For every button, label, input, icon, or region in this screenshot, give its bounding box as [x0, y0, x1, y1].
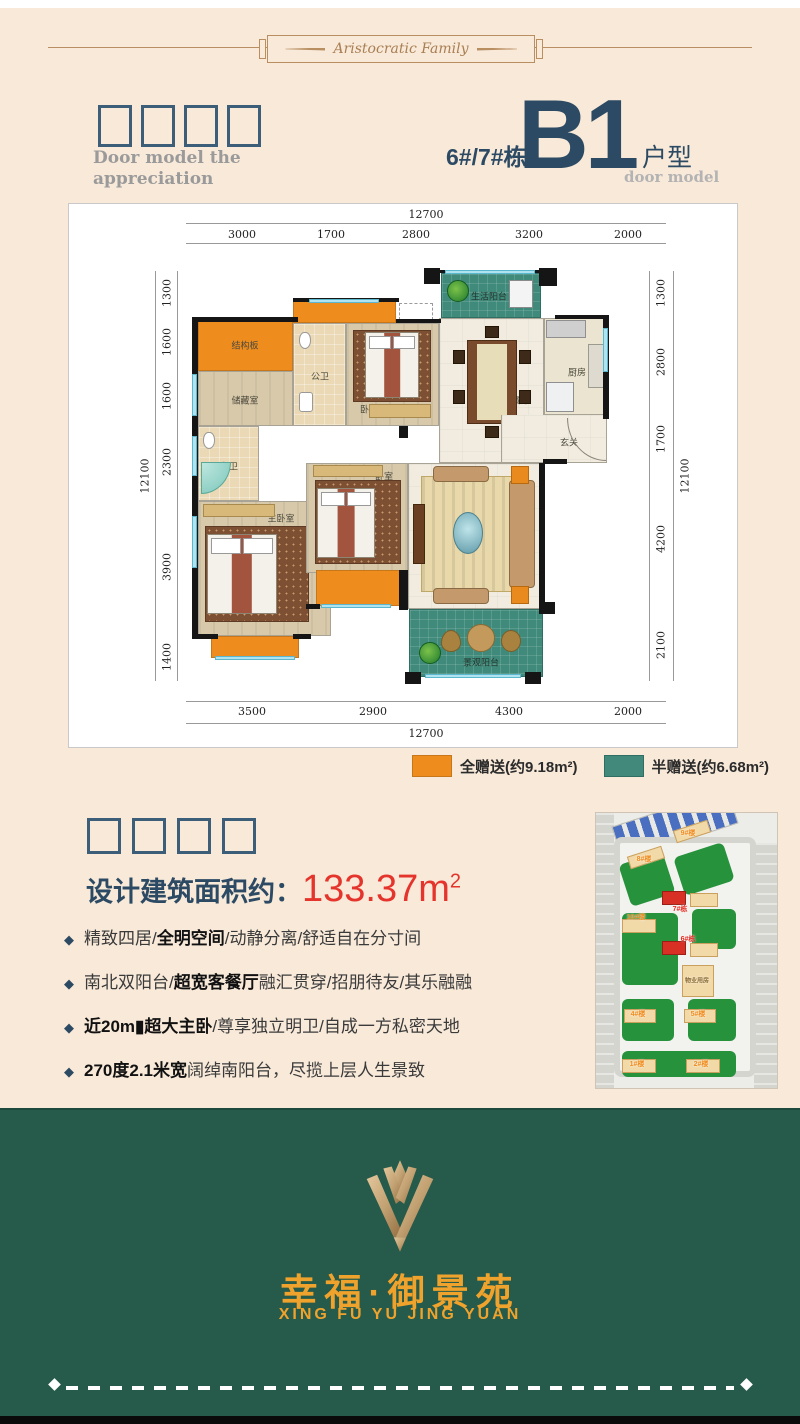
- diamond-bullet-icon: ◆: [64, 1020, 74, 1036]
- dim-left-total: 12100: [139, 459, 152, 494]
- poster: Aristocratic Family Door model the appre…: [0, 0, 800, 1424]
- room-label-life-balcony: 生活阳台: [471, 290, 507, 303]
- brand-logo: [0, 1158, 800, 1254]
- feature-post: /动静分离/舒适自在分寸间: [225, 929, 421, 948]
- dim-bottom-2: 4300: [495, 705, 523, 718]
- dim-left-0: 1300: [161, 279, 174, 307]
- washer: [509, 280, 533, 308]
- window: [445, 270, 535, 274]
- sitemap-building: [690, 943, 718, 957]
- pillow: [243, 538, 272, 554]
- dim-line: [186, 723, 666, 724]
- wall-pillar: [424, 268, 440, 284]
- plant: [419, 642, 441, 664]
- chair: [453, 390, 465, 404]
- sitemap-road: [596, 813, 614, 1088]
- subtitle-en: Door model the appreciation: [93, 148, 241, 190]
- placeholder-square: [132, 818, 166, 854]
- dim-top-2: 2800: [402, 228, 430, 241]
- placeholder-square: [141, 105, 175, 147]
- footer: 幸福·御景苑 XING FU YU JING YUAN: [0, 1108, 800, 1418]
- wall: [192, 317, 298, 322]
- ornament-cap-left: [259, 39, 266, 59]
- balcony-chair: [501, 630, 521, 652]
- chair: [485, 326, 499, 338]
- sitemap-building: [690, 893, 718, 907]
- wall: [543, 459, 567, 464]
- feature-post: 融汇贯穿/招朋待友/其乐融融: [259, 973, 472, 992]
- window: [192, 436, 197, 476]
- legend-full-label: 全赠送(约9.18m²): [460, 756, 578, 777]
- sitemap-label-1: 1#楼: [630, 1059, 645, 1069]
- wall: [539, 463, 545, 609]
- wall: [399, 426, 408, 438]
- dim-line: [186, 243, 666, 244]
- dim-left-5: 1400: [161, 643, 174, 671]
- wall: [399, 570, 408, 610]
- dim-top-total: 12700: [409, 208, 444, 221]
- dim-line: [186, 223, 666, 224]
- dim-left-1: 1600: [161, 328, 174, 356]
- tv-cabinet: [413, 504, 425, 564]
- area-line: 设计建筑面积约：133.37m2: [86, 868, 461, 911]
- sitemap-label-5: 5#楼: [691, 1009, 706, 1019]
- placeholder-square: [87, 818, 121, 854]
- sitemap: 9#楼 8#楼 7#栋 10#楼 6#栋 物业用房 4#楼 5#楼 1#楼 2#…: [595, 812, 778, 1089]
- dim-right-2: 1700: [655, 425, 668, 453]
- feature-list: ◆ 精致四居/全明空间/动静分离/舒适自在分寸间 ◆ 南北双阳台/超宽客餐厅融汇…: [64, 924, 472, 1081]
- fridge: [546, 382, 574, 412]
- gift-area-bottom-mid: [316, 570, 406, 606]
- diamond-bullet-icon: ◆: [64, 1064, 74, 1080]
- feature-bold: 全明空间: [157, 929, 225, 948]
- wall: [196, 634, 218, 639]
- coffee-table: [453, 512, 483, 554]
- wall: [396, 319, 441, 323]
- feature-bold: 近20m▮超大主卧: [84, 1017, 212, 1036]
- plant: [447, 280, 469, 302]
- chair: [485, 426, 499, 438]
- dim-top-1: 1700: [317, 228, 345, 241]
- kitchen-sink: [546, 320, 586, 338]
- window: [309, 299, 379, 303]
- room-label-structure: 结构板: [231, 339, 258, 352]
- window: [192, 374, 197, 416]
- feature-item: ◆ 270度2.1米宽阔绰南阳台，尽揽上层人生景致: [64, 1056, 472, 1081]
- legend-half-gift: 半赠送(约6.68m²): [604, 755, 770, 777]
- toilet: [299, 332, 311, 349]
- dim-right-0: 1300: [655, 279, 668, 307]
- ornament-flourish-left: [285, 48, 325, 51]
- dim-bottom-1: 2900: [359, 705, 387, 718]
- sitemap-label-9: 9#楼: [681, 828, 696, 838]
- subtitle-en-line1: Door model the: [93, 148, 241, 169]
- ornament-cap-right: [536, 39, 543, 59]
- sitemap-label-2: 2#楼: [694, 1059, 709, 1069]
- building-number: 6#/7#栋: [446, 138, 527, 172]
- wall-pillar: [539, 602, 555, 614]
- bottom-black-strip: [0, 1416, 800, 1424]
- legend-half-label: 半赠送(约6.68m²): [652, 756, 770, 777]
- sitemap-road: [754, 843, 777, 1088]
- feature-item: ◆ 精致四居/全明空间/动静分离/舒适自在分寸间: [64, 924, 472, 949]
- dim-top-0: 3000: [228, 228, 256, 241]
- wall: [192, 317, 198, 639]
- window: [425, 674, 521, 678]
- dim-right-4: 2100: [655, 631, 668, 659]
- placeholder-square: [227, 105, 261, 147]
- wall: [293, 634, 311, 639]
- sitemap-building-highlight: [662, 891, 686, 905]
- feature-item: ◆ 近20m▮超大主卧/尊享独立明卫/自成一方私密天地: [64, 1012, 472, 1037]
- feature-pre: 南北双阳台/: [84, 973, 174, 992]
- legend-swatch-orange: [412, 755, 452, 777]
- sofa-main: [509, 480, 535, 588]
- side-table: [511, 586, 529, 604]
- feature-post: 阔绰南阳台，尽揽上层人生景致: [187, 1061, 425, 1080]
- feature-pre: 精致四居/: [84, 929, 157, 948]
- window: [215, 656, 295, 660]
- gift-area-top-strip: [293, 301, 396, 323]
- sofa-small: [433, 588, 489, 604]
- footer-dashed-line: [66, 1386, 734, 1390]
- sitemap-label-10: 10#楼: [627, 912, 646, 922]
- dim-line: [155, 271, 156, 681]
- room-label-kitchen: 厨房: [568, 366, 586, 379]
- gift-legend: 全赠送(约9.18m²) 半赠送(约6.68m²): [412, 755, 769, 777]
- bathtub: [299, 392, 313, 412]
- dim-right-3: 4200: [655, 525, 668, 553]
- dim-bottom-total: 12700: [409, 727, 444, 740]
- area-sup: 2: [450, 870, 461, 892]
- master-bed: [207, 534, 277, 614]
- window: [192, 516, 197, 568]
- brand-logo-icon: [348, 1158, 452, 1254]
- chair: [519, 390, 531, 404]
- sitemap-label-service: 物业用房: [685, 976, 709, 985]
- feature-bold: 270度2.1米宽: [84, 1061, 187, 1080]
- placeholder-square: [98, 105, 132, 147]
- subtitle-en-line2: appreciation: [93, 169, 241, 190]
- dim-top-4: 2000: [614, 228, 642, 241]
- pillow: [211, 538, 240, 554]
- placeholder-square: [184, 105, 218, 147]
- area-value: 133.37m2: [302, 868, 461, 910]
- window: [321, 604, 391, 608]
- sitemap-label-8: 8#楼: [637, 854, 652, 864]
- diamond-end-icon: [48, 1378, 61, 1391]
- brand-name-en: XING FU YU JING YUAN: [0, 1306, 800, 1324]
- dim-bottom-0: 3500: [238, 705, 266, 718]
- diamond-end-icon: [740, 1378, 753, 1391]
- area-number: 133.37m: [302, 868, 450, 910]
- pillow: [347, 492, 371, 506]
- dim-left-3: 2300: [161, 448, 174, 476]
- bed: [365, 332, 419, 398]
- area-placeholder-squares: [87, 818, 256, 854]
- area-label: 设计建筑面积约：: [86, 877, 302, 907]
- dim-top-3: 3200: [515, 228, 543, 241]
- unit-code: B1: [518, 85, 635, 183]
- room-label-public-bath: 公卫: [311, 370, 329, 383]
- pillow: [393, 336, 416, 350]
- dim-right-total: 12100: [679, 459, 692, 494]
- room-label-view-balcony: 景观阳台: [463, 656, 499, 669]
- diamond-bullet-icon: ◆: [64, 976, 74, 992]
- wall-pillar: [405, 672, 421, 684]
- sitemap-label-4: 4#楼: [631, 1009, 646, 1019]
- bed: [317, 488, 375, 558]
- dim-line: [673, 271, 674, 681]
- floorplan-panel: 12700 3000 1700 2800 3200 2000 3500 2900…: [68, 203, 738, 748]
- wardrobe: [369, 404, 431, 418]
- ornament-box: Aristocratic Family: [267, 35, 535, 63]
- pillow: [321, 492, 345, 506]
- wall-pillar: [525, 672, 541, 684]
- dim-right-1: 2800: [655, 348, 668, 376]
- top-white-strip: [0, 0, 800, 8]
- wall: [555, 315, 609, 319]
- sitemap-label-7: 7#栋: [673, 904, 688, 914]
- legend-full-gift: 全赠送(约9.18m²): [412, 755, 578, 777]
- balcony-chair: [441, 630, 461, 652]
- dim-line: [177, 271, 178, 681]
- feature-item: ◆ 南北双阳台/超宽客餐厅融汇贯穿/招朋待友/其乐融融: [64, 968, 472, 993]
- sitemap-label-6: 6#栋: [681, 934, 696, 944]
- sofa-small: [433, 466, 489, 482]
- feature-bold: 超宽客餐厅: [174, 973, 259, 992]
- dim-left-4: 3900: [161, 553, 174, 581]
- gift-area-master-bay: [211, 636, 299, 658]
- side-table: [511, 466, 529, 484]
- toilet: [203, 432, 215, 449]
- placeholder-square: [222, 818, 256, 854]
- ornament-flourish-right: [477, 48, 517, 51]
- chair: [453, 350, 465, 364]
- legend-swatch-teal: [604, 755, 644, 777]
- ac-platform: [399, 303, 433, 320]
- wardrobe: [313, 465, 383, 477]
- feature-post: /尊享独立明卫/自成一方私密天地: [212, 1017, 459, 1036]
- chair: [519, 350, 531, 364]
- unit-type-en: door model: [624, 168, 719, 186]
- ornament-text: Aristocratic Family: [333, 41, 468, 57]
- balcony-table: [467, 624, 495, 652]
- placeholder-square: [177, 818, 211, 854]
- dining-runner: [477, 344, 507, 420]
- dim-line: [186, 701, 666, 702]
- dim-line: [649, 271, 650, 681]
- wardrobe: [203, 504, 275, 517]
- pillow: [369, 336, 392, 350]
- title-placeholder-squares: [98, 105, 261, 147]
- wall: [306, 604, 320, 609]
- room-label-storage: 储藏室: [231, 394, 258, 407]
- diamond-bullet-icon: ◆: [64, 932, 74, 948]
- dim-bottom-3: 2000: [614, 705, 642, 718]
- dim-left-2: 1600: [161, 382, 174, 410]
- window: [603, 328, 608, 372]
- wall-pillar: [539, 268, 557, 286]
